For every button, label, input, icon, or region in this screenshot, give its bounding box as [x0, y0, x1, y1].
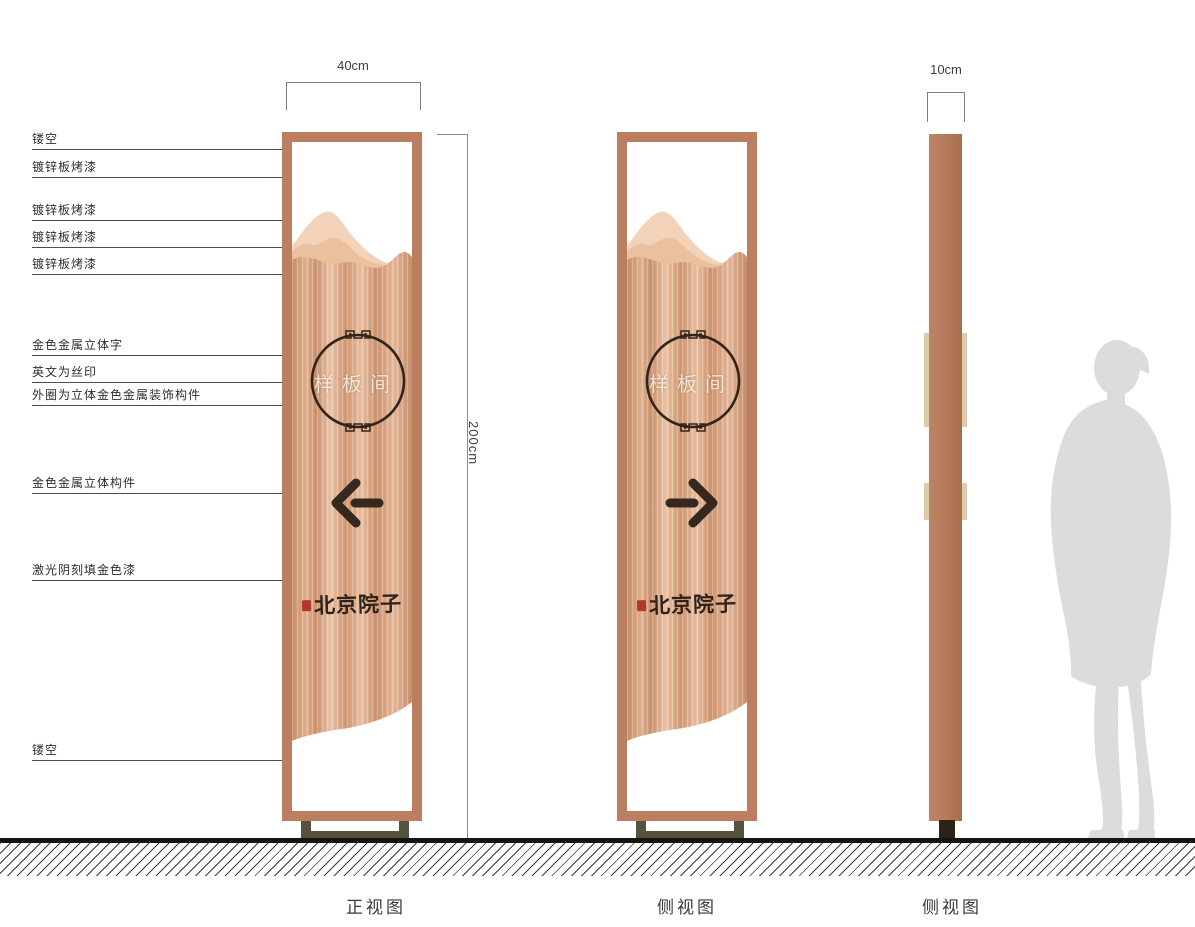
dimension-height-line	[467, 134, 468, 838]
profile-ring-tab-right	[962, 333, 967, 427]
dimension-depth-label: 10cm	[927, 62, 965, 77]
right-arrow-icon	[665, 478, 719, 528]
profile-stand-post	[939, 820, 955, 839]
pillar-front-face: 样板间 北京院子	[292, 142, 412, 811]
left-arrow-icon	[330, 478, 384, 528]
annotation-outer-ring: 外圈为立体金色金属装饰构件	[32, 388, 318, 406]
room-plate-text: 样板间	[292, 368, 412, 397]
annotation-galvanized-1: 镀锌板烤漆	[32, 160, 286, 178]
dimension-depth-bracket	[927, 92, 965, 122]
pillar-side-view: 样板间 北京院子	[617, 132, 757, 821]
room-plate-text: 样板间	[627, 368, 747, 397]
front-stand-bar	[301, 831, 409, 838]
side-stand-bar	[636, 831, 744, 838]
annotation-galvanized-3: 镀锌板烤漆	[32, 230, 293, 248]
dimension-height-label: 200cm	[466, 421, 481, 465]
annotation-galvanized-2: 镀锌板烤漆	[32, 203, 322, 221]
brand-logo-text: 北京院子	[314, 591, 403, 618]
brand-logo-text: 北京院子	[649, 591, 738, 618]
brand-logo: 北京院子	[627, 587, 747, 620]
annotation-hollow-bottom: 镂空	[32, 743, 302, 761]
annotation-hollow-top: 镂空	[32, 132, 307, 150]
red-seal-icon	[302, 600, 311, 611]
caption-profile-view: 侧视图	[897, 893, 1007, 918]
pillar-profile-view	[929, 134, 962, 821]
profile-arrow-tab-left	[924, 483, 929, 520]
caption-front-view: 正视图	[321, 893, 431, 918]
annotation-laser-engraved: 激光阴刻填金色漆	[32, 563, 310, 581]
caption-side-view: 侧视图	[632, 893, 742, 918]
dimension-width-label: 40cm	[286, 58, 420, 73]
brand-logo: 北京院子	[292, 587, 412, 620]
red-seal-icon	[637, 600, 646, 611]
mountain-artwork	[627, 142, 747, 811]
dimension-width-bracket	[286, 82, 421, 110]
human-scale-silhouette	[1043, 338, 1178, 841]
profile-arrow-tab-right	[962, 483, 967, 520]
dimension-height-tick	[437, 134, 468, 135]
annotation-galvanized-4: 镀锌板烤漆	[32, 257, 293, 275]
ground-hatching	[0, 843, 1195, 876]
signage-spec-drawing: 镂空 镀锌板烤漆 镀锌板烤漆 镀锌板烤漆 镀锌板烤漆 金色金属立体字 英文为丝印…	[0, 0, 1195, 927]
pillar-front-view: 样板间 北京院子	[282, 132, 422, 821]
mountain-artwork	[292, 142, 412, 811]
profile-ring-tab-left	[924, 333, 929, 427]
pillar-side-face: 样板间 北京院子	[627, 142, 747, 811]
